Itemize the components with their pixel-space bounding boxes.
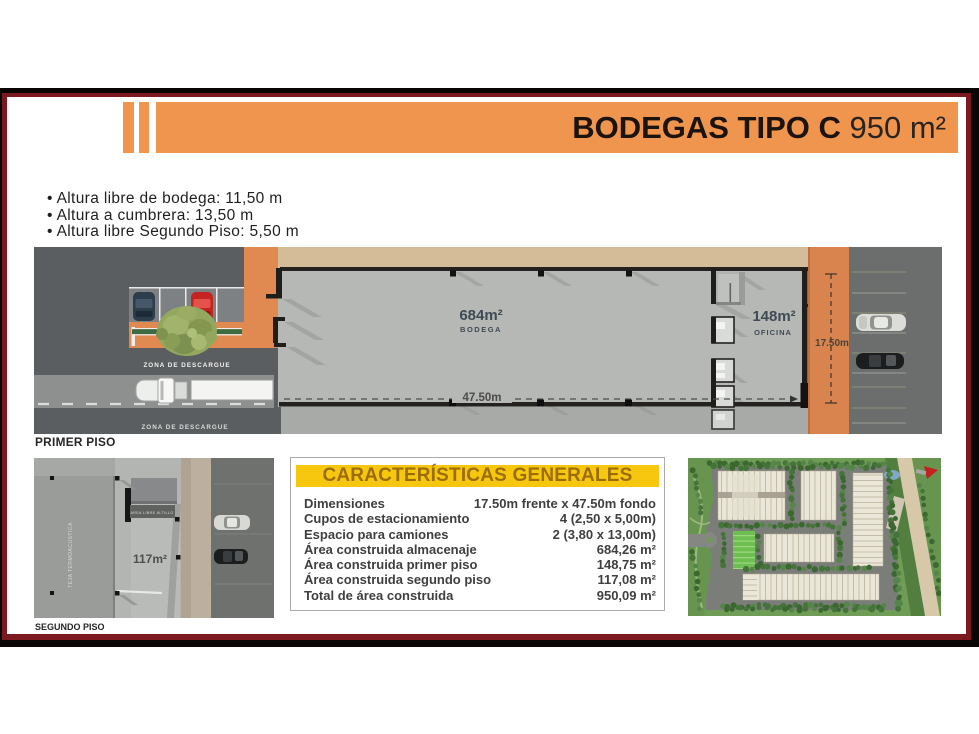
- svg-text:148m²: 148m²: [752, 308, 795, 325]
- svg-text:OFICINA: OFICINA: [754, 328, 792, 337]
- svg-text:AREA LIBRE ALTILLO: AREA LIBRE ALTILLO: [130, 511, 173, 515]
- svg-text:117m²: 117m²: [133, 552, 167, 566]
- svg-text:TEJA TERMOACUSTICA: TEJA TERMOACUSTICA: [68, 522, 74, 588]
- svg-text:47.50m: 47.50m: [462, 392, 501, 404]
- svg-text:17.50m: 17.50m: [815, 338, 849, 349]
- svg-text:684m²: 684m²: [459, 307, 502, 324]
- svg-text:ZONA DE DESCARGUE: ZONA DE DESCARGUE: [141, 424, 228, 431]
- svg-text:ZONA DE DESCARGUE: ZONA DE DESCARGUE: [143, 362, 230, 369]
- svg-text:BODEGA: BODEGA: [460, 325, 502, 334]
